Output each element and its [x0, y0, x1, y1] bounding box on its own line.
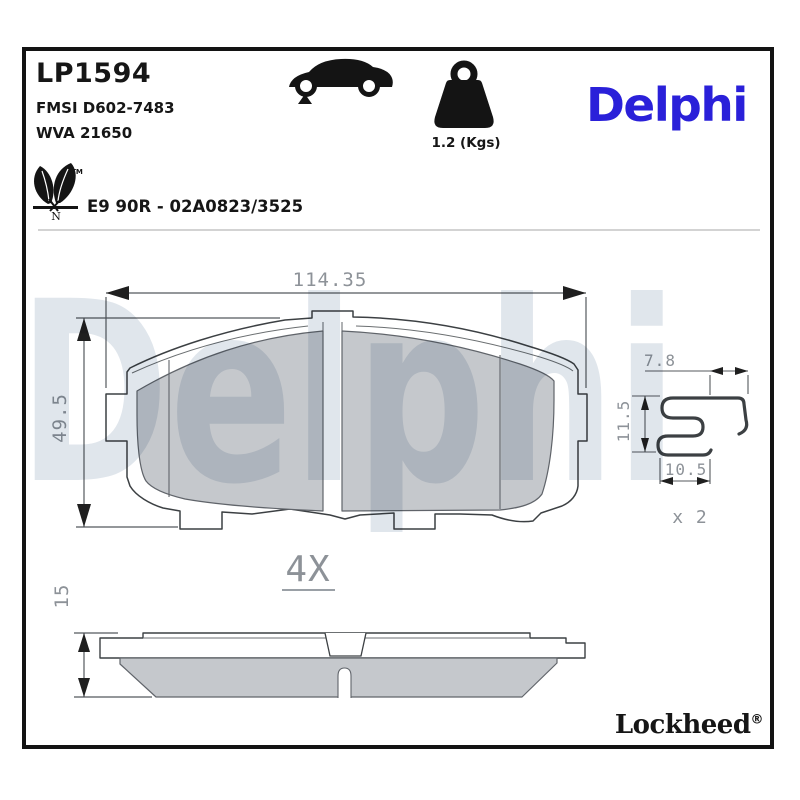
clip-height-arrow-top [641, 396, 649, 410]
clip-topwidth-arrow-left [710, 367, 723, 375]
weight-body [434, 80, 493, 128]
leaf-letter: N [51, 210, 61, 223]
technical-drawing: N TM 114.35 49.5 4X [0, 0, 800, 800]
lockheed-logo: Lockheed® [615, 710, 763, 740]
front-view-drawing [106, 311, 587, 529]
set-quantity: 4X [282, 549, 335, 590]
car-icon [289, 59, 393, 104]
car-rear-wheel [361, 78, 378, 95]
clip-topwidth-dim-lines [645, 371, 748, 395]
lockheed-wordmark: Lockheed [615, 710, 751, 740]
clip-quantity-label: x 2 [672, 507, 708, 528]
leaf-baseline-bar [33, 206, 78, 209]
clip-view-drawing: 7.8 11.5 10.5 x 2 [614, 351, 748, 528]
width-dimension: 114.35 [293, 269, 368, 291]
thickness-dim-arrow-top [78, 633, 90, 652]
leaf-trademark: TM [71, 168, 83, 176]
clip-wire-profile [658, 398, 747, 455]
leaf-left [34, 166, 54, 204]
height-dimension: 49.5 [49, 393, 71, 443]
clip-topwidth-arrow-right [735, 367, 748, 375]
clip-height-dimension: 11.5 [614, 400, 633, 443]
registered-trademark-icon: ® [751, 712, 764, 727]
clip-bottom-width-dimension: 10.5 [665, 460, 708, 479]
weight-icon [434, 64, 493, 128]
set-quantity-label: 4X [285, 549, 330, 590]
side-plate-center-notch [325, 633, 366, 656]
leaf-logo-icon: N TM [33, 163, 83, 223]
side-view-drawing [100, 633, 585, 698]
thickness-dimension: 15 [51, 584, 73, 609]
clip-top-width-dimension: 7.8 [644, 351, 676, 370]
height-dim-arrow-top [77, 318, 91, 341]
width-dim-arrow-right [563, 286, 586, 300]
datasheet-page: LP1594 FMSI D602-7483 WVA 21650 E9 90R -… [0, 0, 800, 800]
height-dim-arrow-bottom [77, 504, 91, 527]
side-friction-center-slit [338, 668, 351, 698]
thickness-dim-arrow-bottom [78, 678, 90, 697]
car-front-wheel [298, 78, 315, 95]
width-dim-arrow-left [106, 286, 129, 300]
clip-height-arrow-bottom [641, 438, 649, 452]
